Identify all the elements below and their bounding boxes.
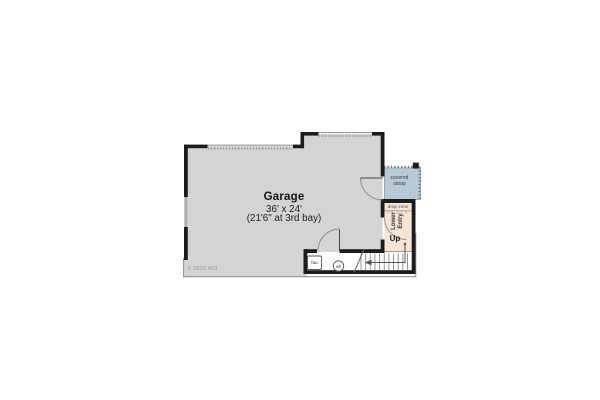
window (185, 197, 188, 227)
water-heater-label: wh (333, 264, 343, 269)
copyright-text: © 2025 ADI (187, 266, 218, 272)
stairs-up-label: Up (384, 234, 406, 243)
garage-bay-note: (21'6" at 3rd bay) (224, 213, 344, 224)
fau-label: fau (308, 260, 322, 265)
floorplan-canvas: Garage 36' x 24' (21'6" at 3rd bay) cove… (0, 0, 600, 400)
covered-stoop-label: covered stoop (384, 175, 415, 188)
garage-room-label: Garage (224, 191, 344, 203)
stoop-post (413, 163, 419, 169)
lower-entry-label: Lower Entry (391, 208, 415, 234)
